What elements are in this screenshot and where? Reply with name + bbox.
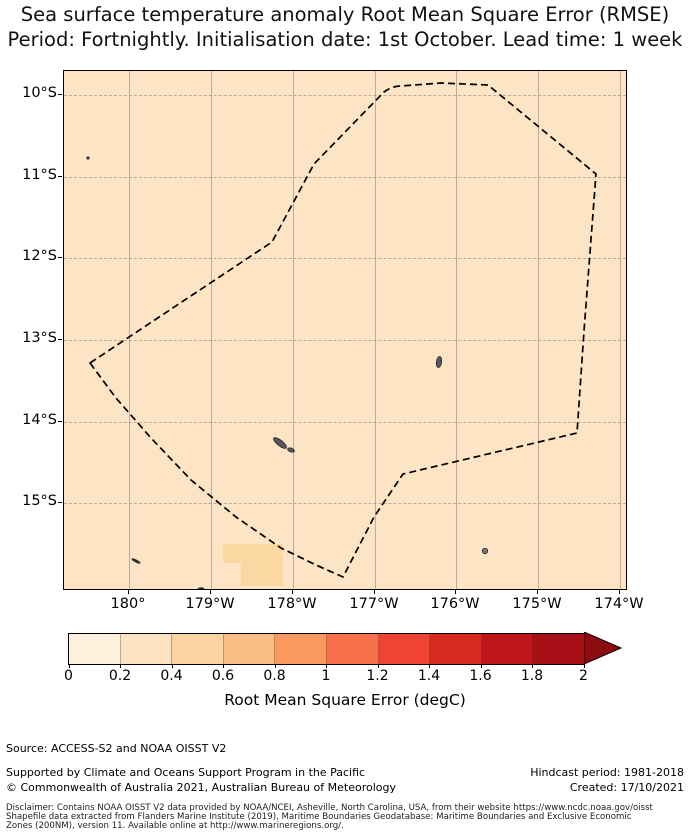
colorbar-segment — [533, 634, 584, 664]
colorbar-tick-label: 1.4 — [418, 668, 440, 684]
islet — [87, 157, 90, 160]
y-tick-mark — [58, 94, 62, 95]
y-tick-mark — [58, 502, 62, 503]
x-tick-label: 174°W — [594, 596, 643, 612]
hindcast-period-text: Hindcast period: 1981-2018 — [0, 766, 684, 779]
x-tick-mark — [210, 590, 211, 594]
y-tick-mark — [58, 421, 62, 422]
map-panel — [63, 70, 627, 590]
chart-title: Sea surface temperature anomaly Root Mea… — [21, 3, 669, 26]
source-text: Source: ACCESS-S2 and NOAA OISST V2 — [6, 742, 226, 755]
islet — [482, 548, 488, 554]
colorbar-tick-label: 0.4 — [160, 668, 182, 684]
y-tick-mark — [58, 176, 62, 177]
y-tick-mark — [58, 257, 62, 258]
x-tick-label: 175°W — [512, 596, 561, 612]
colorbar-segment — [275, 634, 327, 664]
colorbar-segment — [69, 634, 121, 664]
created-date-text: Created: 17/10/2021 — [0, 781, 684, 794]
colorbar — [68, 633, 585, 665]
y-tick-label: 13°S — [0, 330, 57, 346]
islands — [87, 157, 488, 589]
x-tick-mark — [128, 590, 129, 594]
colorbar-segment — [379, 634, 431, 664]
colorbar-tick-label: 1 — [322, 668, 331, 684]
x-tick-mark — [619, 590, 620, 594]
figure: Sea surface temperature anomaly Root Mea… — [0, 0, 690, 839]
x-tick-mark — [374, 590, 375, 594]
y-tick-mark — [58, 339, 62, 340]
x-tick-label: 176°W — [430, 596, 479, 612]
x-tick-label: 180° — [111, 596, 146, 612]
rmse-patch — [223, 544, 283, 586]
islet — [198, 588, 204, 589]
colorbar-segment — [327, 634, 379, 664]
colorbar-tick-label: 1.2 — [366, 668, 388, 684]
y-tick-label: 12°S — [0, 248, 57, 264]
colorbar-segment — [172, 634, 224, 664]
disclaimer-line: Zones (200NM), version 11. Available onl… — [6, 821, 690, 831]
x-tick-label: 179°W — [185, 596, 234, 612]
colorbar-tick-label: 0 — [64, 668, 73, 684]
x-tick-mark — [537, 590, 538, 594]
island-futuna — [272, 436, 288, 450]
island-wallis — [436, 356, 443, 368]
x-tick-label: 177°W — [349, 596, 398, 612]
x-tick-label: 178°W — [267, 596, 316, 612]
chart-subtitle: Period: Fortnightly. Initialisation date… — [8, 28, 683, 51]
y-tick-label: 15°S — [0, 493, 57, 509]
colorbar-tick-label: 0.8 — [263, 668, 285, 684]
x-tick-mark — [455, 590, 456, 594]
colorbar-segment — [224, 634, 276, 664]
map-overlay — [64, 71, 626, 589]
colorbar-segment — [121, 634, 173, 664]
colorbar-segment — [430, 634, 482, 664]
y-tick-label: 14°S — [0, 412, 57, 428]
islet — [131, 558, 140, 564]
x-tick-mark — [292, 590, 293, 594]
eez-boundary-line — [90, 83, 596, 577]
colorbar-label: Root Mean Square Error (degC) — [0, 691, 690, 709]
colorbar-tick-label: 0.2 — [109, 668, 131, 684]
colorbar-tick-label: 2 — [579, 668, 588, 684]
colorbar-tick-label: 1.6 — [469, 668, 491, 684]
colorbar-arrow — [584, 632, 624, 664]
y-tick-label: 10°S — [0, 85, 57, 101]
island-alofi — [287, 447, 295, 453]
y-tick-label: 11°S — [0, 167, 57, 183]
colorbar-tick-label: 1.8 — [521, 668, 543, 684]
colorbar-segment — [482, 634, 534, 664]
colorbar-tick-label: 0.6 — [212, 668, 234, 684]
